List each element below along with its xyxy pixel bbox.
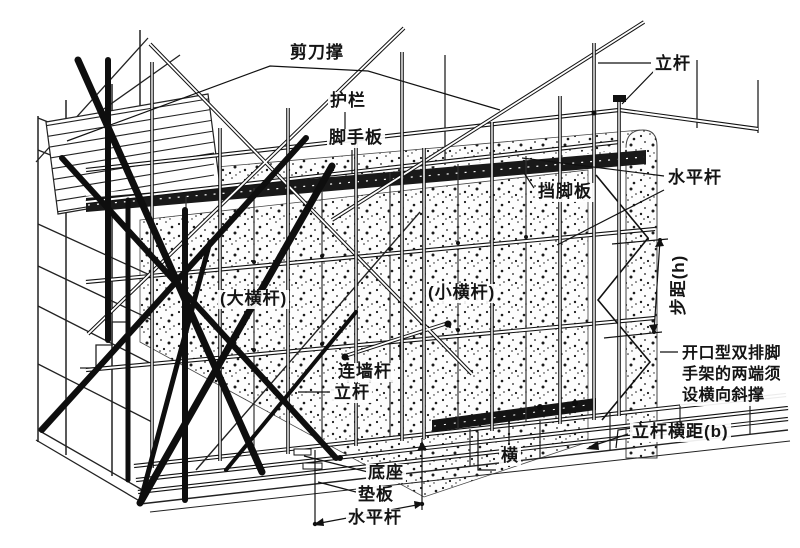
label-transverse-ledger: (小横杆)	[426, 284, 497, 303]
label-transverse-short: 横	[499, 447, 521, 466]
label-toe-board: 挡脚板	[536, 183, 594, 202]
scaffold-diagram: 剪刀撑 立杆 护栏 脚手板 水平杆 挡脚板 步距(h) (大横杆) (小横杆) …	[0, 0, 800, 548]
label-guardrail: 护栏	[328, 92, 368, 111]
label-wall-tie: 连墙杆	[336, 363, 394, 382]
label-base-plate: 底座	[366, 464, 406, 483]
label-upright-row-spacing: 立杆横距(b)	[630, 423, 731, 442]
label-pad-board: 垫板	[356, 486, 396, 505]
label-upright-top: 立杆	[653, 55, 693, 74]
label-main-ledger: (大横杆)	[218, 290, 289, 309]
label-step-height: 步距(h)	[670, 236, 689, 334]
label-horizontal-bar-right: 水平杆	[666, 169, 724, 188]
label-horizontal-bar-bottom: 水平杆	[346, 509, 404, 528]
label-scissor-brace: 剪刀撑	[288, 44, 346, 63]
label-scaffold-board: 脚手板	[327, 129, 385, 148]
label-open-end-note: 开口型双排脚手架的两端须设横向斜撑	[680, 343, 790, 406]
label-upright-mid: 立杆	[332, 384, 372, 403]
